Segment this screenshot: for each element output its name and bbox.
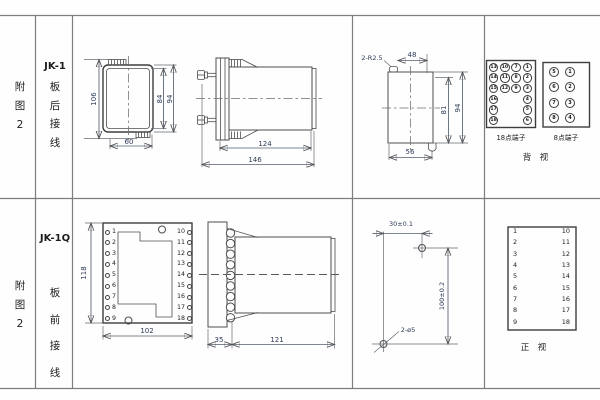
terminal-number: 18 [177,316,185,322]
terminal-grid-18: 131071141182151293164175186 [488,62,533,126]
front-view-label: 正 视 [502,341,566,353]
terminal-number: 5 [112,272,116,278]
terminal-number: 17 [177,305,185,311]
terminal-dot [105,240,110,245]
figure-label-row2: 附 图 2 [8,277,32,334]
terminal-circle: 11 [500,73,510,83]
terminal-row: 18 [177,316,192,322]
terminal-circle: 7 [549,98,559,108]
dim-label: 30±0.1 [389,220,413,228]
jk1-side-view [196,58,322,167]
terminal-dot [105,305,110,310]
terminal-circle: 7 [511,63,521,73]
terminal-circle [511,116,521,126]
terminal-circle [511,95,521,105]
terminal-circle: 17 [489,105,499,115]
terminal-row: 9 [105,316,116,322]
terminal-dot [105,230,110,235]
terminal-number: 2 [112,240,116,246]
terminal-circle: 2 [565,82,575,92]
terminal-number: 11 [562,239,570,246]
terminal-number: 13 [562,262,570,269]
terminal-number: 9 [112,316,116,322]
terminal-dot [187,251,192,256]
dim-label: 2-ø5 [401,326,416,334]
terminal-number: 3 [513,251,517,258]
terminal-number: 5 [513,273,517,280]
terminal-row: 8 [105,305,116,311]
jk1q-side-view [199,222,340,349]
terminal-number: 15 [562,285,570,292]
dim-label: 118 [80,266,88,279]
table-left-column: 123456789 [513,228,517,325]
terminal-number: 14 [177,272,185,278]
screw-terminal [198,71,217,80]
dim-label: 100±0.2 [438,282,446,310]
terminal-dot [187,240,192,245]
terminal-circle: 16 [489,95,499,105]
terminal-row: 2 [105,240,116,246]
wiring-label-row2: 板 前 接 线 [43,280,67,386]
terminal-dot [187,273,192,278]
terminal-row: 1 [105,229,116,235]
dim-label: 2-R2.5 [361,54,382,62]
terminal-circle [511,105,521,115]
terminal-number: 14 [562,273,570,280]
dim-label: 48 [408,51,417,59]
terminal-circle: 6 [523,116,533,126]
terminal-dot [105,251,110,256]
terminal-number: 10 [562,228,570,235]
terminal-number: 18 [562,319,570,326]
terminal-row: 4 [105,261,116,267]
terminal-row: 12 [177,251,192,257]
terminal-number: 2 [513,239,517,246]
relay-dimension-sheet: 附 图 2 JK-1 板 后 接 线 附 图 2 JK-1Q 板 前 接 线 1… [0,0,600,400]
terminal-number: 15 [177,283,185,289]
terminal-number: 11 [177,240,185,246]
caption-8-point: 8点端子 [540,132,592,142]
terminal-circle [500,105,510,115]
terminal-circle: 1 [523,63,533,73]
terminal-row: 5 [105,272,116,278]
front-view-right-terminals: 101112131415161718 [171,229,192,322]
dim-label: 56 [406,148,415,156]
terminal-number: 1 [112,229,116,235]
terminal-circle: 5 [549,67,559,77]
terminal-row: 14 [177,272,192,278]
terminal-number: 8 [513,307,517,314]
terminal-number: 12 [177,251,185,257]
terminal-dot [187,284,192,289]
terminal-circle: 8 [511,73,521,83]
terminal-number: 4 [112,261,116,267]
terminal-number: 9 [513,319,517,326]
terminal-circle: 6 [549,82,559,92]
terminal-number: 6 [513,285,517,292]
terminal-circle: 8 [549,113,559,123]
terminal-number: 10 [177,229,185,235]
terminal-row: 11 [177,240,192,246]
terminal-number: 17 [562,307,570,314]
terminal-number: 7 [513,296,517,303]
terminal-dot [187,305,192,310]
terminal-number: 1 [513,228,517,235]
dim-label: 124 [258,140,271,148]
dim-label: 102 [140,327,153,335]
dim-label: 60 [125,138,134,146]
terminal-circle: 5 [523,105,533,115]
terminal-circle: 3 [523,84,533,94]
terminal-row: 13 [177,261,192,267]
figure-label-row1: 附 图 2 [8,78,32,135]
rear-view-label: 背 视 [504,151,568,163]
terminal-circle: 1 [565,67,575,77]
terminal-number: 4 [513,262,517,269]
dim-label: 81 [440,106,448,115]
dim-label: 35 [215,336,224,344]
dim-label: 84 [156,94,164,103]
model-label-jk1: JK-1 [38,61,72,72]
terminal-row: 17 [177,305,192,311]
terminal-circle: 9 [511,84,521,94]
terminal-circle: 15 [489,84,499,94]
terminal-circle: 13 [489,63,499,73]
terminal-row: 3 [105,251,116,257]
terminal-row: 7 [105,294,116,300]
terminal-circle [500,116,510,126]
dim-label: 94 [166,94,174,103]
dim-label: 94 [454,103,462,112]
terminal-grid-8: 51627384 [546,64,578,126]
terminal-dot [187,230,192,235]
terminal-number: 3 [112,251,116,257]
terminal-circle: 12 [500,84,510,94]
dim-label: 121 [270,336,283,344]
terminal-number: 7 [112,294,116,300]
terminal-circle: 18 [489,116,499,126]
table-right-column: 101112131415161718 [548,228,570,325]
terminal-number: 16 [177,294,185,300]
terminal-number: 13 [177,261,185,267]
terminal-circle: 4 [523,95,533,105]
terminal-row: 16 [177,294,192,300]
terminal-dot [105,295,110,300]
terminal-circle: 3 [565,98,575,108]
terminal-dot [105,273,110,278]
terminal-row: 15 [177,283,192,289]
line-art [0,0,600,400]
terminal-number: 6 [112,283,116,289]
terminal-circle: 2 [523,73,533,83]
mounting-hole [159,226,166,233]
terminal-row: 10 [177,229,192,235]
terminal-circle: 14 [489,73,499,83]
model-label-jk1q: JK-1Q [36,233,74,244]
dim-label: 146 [248,156,261,164]
front-view-left-terminals: 123456789 [105,229,116,322]
terminal-dot [187,262,192,267]
screw-terminal [198,116,217,125]
terminal-circle [500,95,510,105]
caption-18-point: 18点端子 [484,132,538,142]
terminal-number: 16 [562,296,570,303]
terminal-dot [187,295,192,300]
wiring-label-row1: 板 后 接 线 [43,78,67,152]
dim-label: 106 [90,92,98,105]
terminal-dot [105,262,110,267]
terminal-dot [105,316,110,321]
terminal-number: 8 [112,305,116,311]
terminal-dot [187,316,192,321]
terminal-row: 6 [105,283,116,289]
terminal-circle: 10 [500,63,510,73]
terminal-circle: 4 [565,113,575,123]
terminal-dot [105,284,110,289]
terminal-number: 12 [562,251,570,258]
